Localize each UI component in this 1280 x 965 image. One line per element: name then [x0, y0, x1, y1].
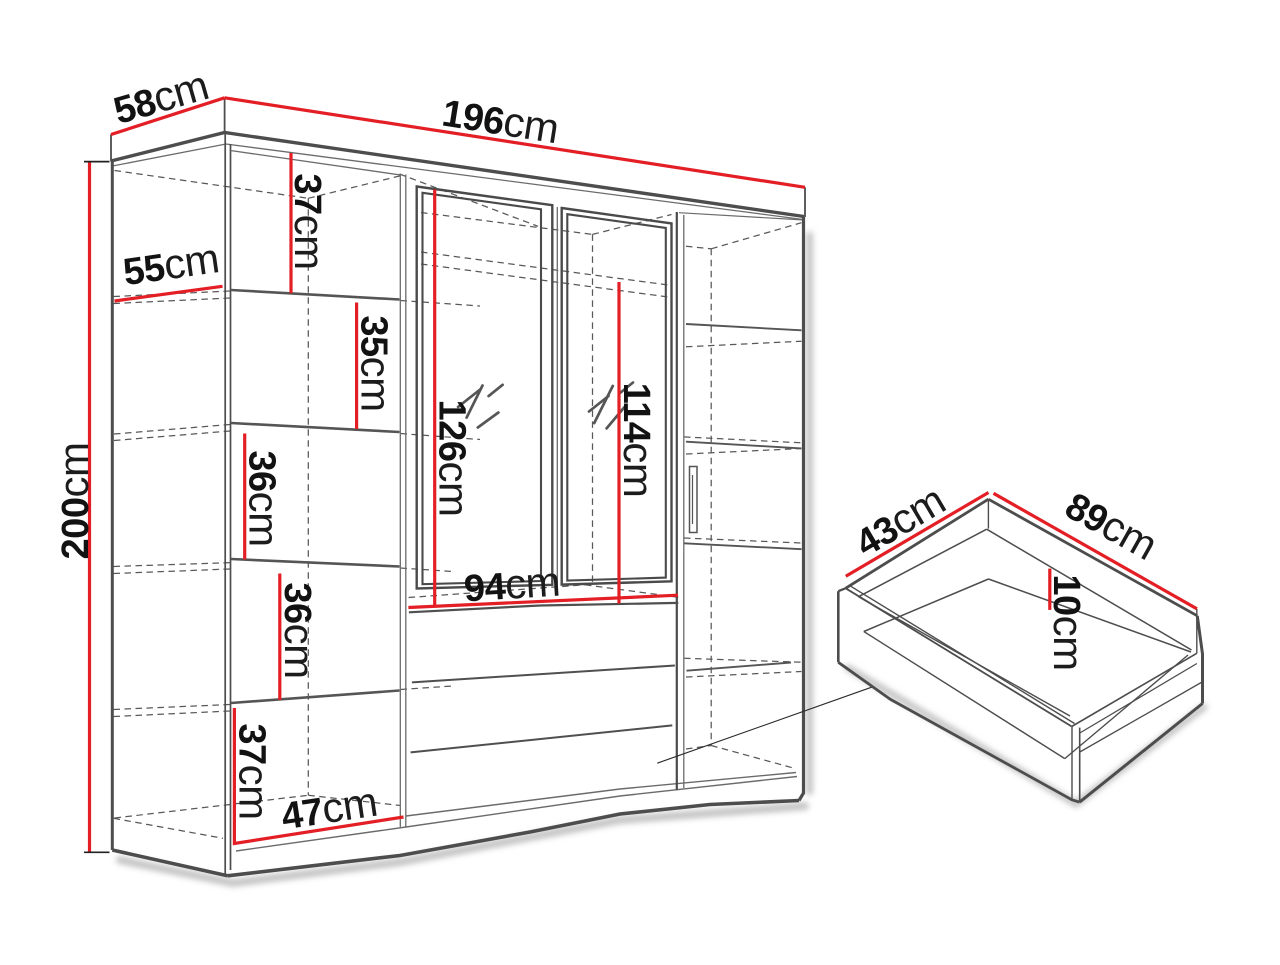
- svg-text:35cm: 35cm: [353, 315, 400, 411]
- svg-text:114cm: 114cm: [615, 383, 662, 498]
- svg-text:36cm: 36cm: [241, 450, 288, 546]
- svg-text:37cm: 37cm: [286, 173, 333, 269]
- svg-text:126cm: 126cm: [431, 400, 478, 517]
- svg-text:10cm: 10cm: [1045, 574, 1092, 670]
- svg-text:36cm: 36cm: [276, 582, 323, 678]
- svg-text:37cm: 37cm: [230, 723, 277, 819]
- svg-text:200cm: 200cm: [50, 443, 97, 560]
